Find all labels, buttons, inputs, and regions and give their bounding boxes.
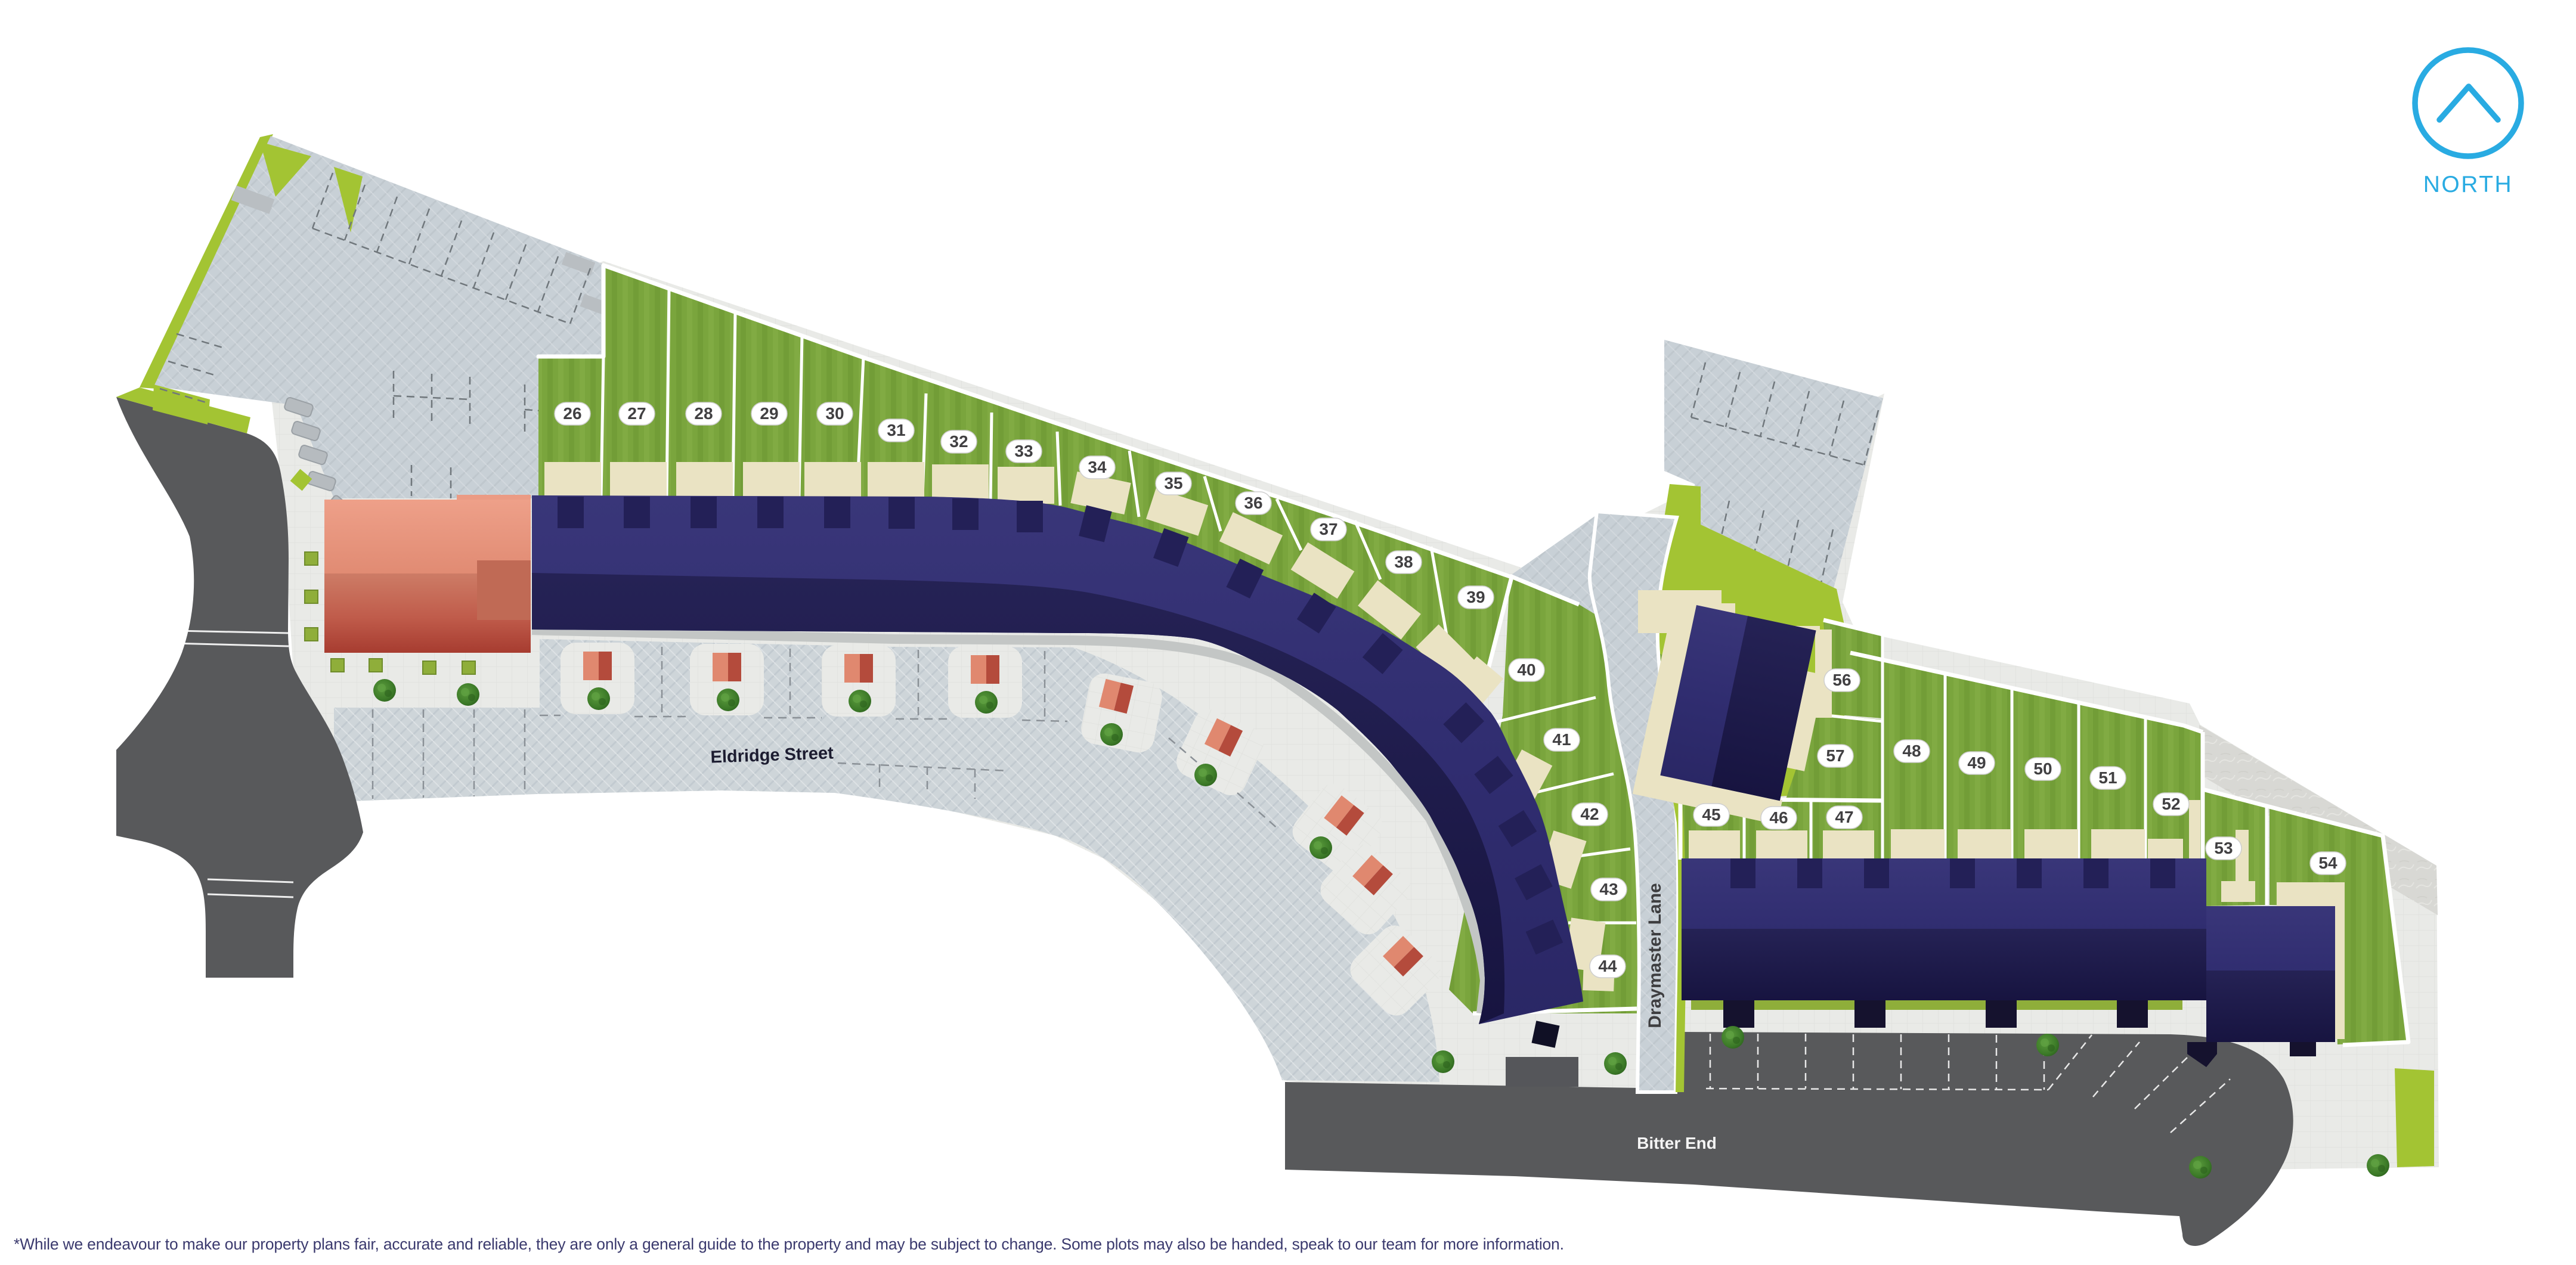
svg-text:31: 31 [887,421,905,439]
svg-text:53: 53 [2214,839,2233,857]
svg-text:26: 26 [563,404,581,423]
svg-text:49: 49 [1967,754,1986,772]
svg-text:NORTH: NORTH [2423,172,2513,197]
svg-text:37: 37 [1319,520,1337,538]
svg-text:47: 47 [1835,808,1853,826]
svg-text:40: 40 [1517,661,1535,679]
svg-text:45: 45 [1702,805,1720,824]
svg-text:33: 33 [1014,442,1033,460]
svg-text:Bitter End: Bitter End [1637,1134,1717,1152]
svg-text:57: 57 [1826,746,1844,765]
svg-text:34: 34 [1088,458,1107,476]
svg-text:30: 30 [825,404,844,423]
svg-text:38: 38 [1394,553,1413,571]
svg-text:36: 36 [1244,494,1262,512]
svg-text:Draymaster Lane: Draymaster Lane [1645,883,1665,1028]
svg-text:28: 28 [694,404,713,423]
svg-text:35: 35 [1164,474,1182,492]
svg-text:43: 43 [1599,880,1618,898]
svg-text:48: 48 [1902,742,1921,760]
svg-text:29: 29 [760,404,778,423]
svg-text:56: 56 [1832,671,1851,689]
svg-text:*While we endeavour to make ou: *While we endeavour to make our property… [14,1235,1564,1253]
svg-text:52: 52 [2162,795,2180,813]
svg-text:42: 42 [1580,805,1599,823]
svg-text:50: 50 [2033,759,2052,778]
svg-text:41: 41 [1552,730,1571,749]
svg-text:39: 39 [1466,588,1485,606]
svg-text:51: 51 [2098,768,2117,787]
svg-text:44: 44 [1598,957,1617,975]
svg-text:46: 46 [1769,808,1788,827]
svg-text:27: 27 [627,404,646,423]
svg-text:54: 54 [2318,854,2337,872]
svg-text:32: 32 [949,432,968,451]
